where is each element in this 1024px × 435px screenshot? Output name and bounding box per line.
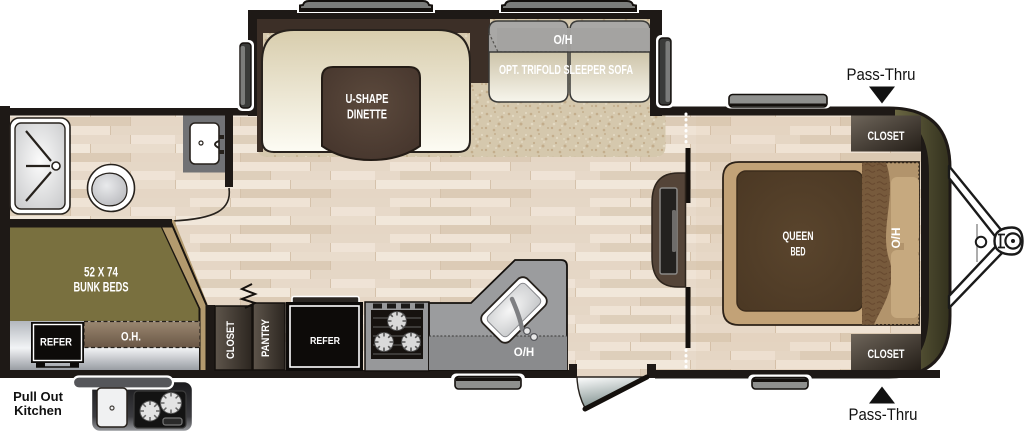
svg-text:REFER: REFER — [40, 337, 72, 349]
svg-text:BED: BED — [791, 245, 806, 259]
svg-text:CLOSET: CLOSET — [868, 131, 905, 143]
svg-text:U-SHAPE: U-SHAPE — [346, 92, 389, 106]
svg-text:DINETTE: DINETTE — [347, 108, 387, 122]
svg-text:QUEEN: QUEEN — [783, 229, 814, 243]
svg-text:CLOSET: CLOSET — [868, 349, 905, 361]
svg-text:Kitchen: Kitchen — [14, 403, 62, 418]
svg-text:Pass-Thru: Pass-Thru — [847, 66, 916, 84]
svg-text:CLOSET: CLOSET — [225, 321, 237, 359]
svg-text:O/H: O/H — [554, 32, 573, 47]
svg-text:OPT. TRIFOLD SLEEPER SOFA: OPT. TRIFOLD SLEEPER SOFA — [499, 63, 633, 77]
svg-text:PANTRY: PANTRY — [260, 318, 272, 357]
svg-text:O/H: O/H — [891, 228, 903, 249]
svg-text:Pull Out: Pull Out — [13, 389, 64, 404]
svg-text:O/H: O/H — [514, 347, 534, 359]
svg-text:BUNK BEDS: BUNK BEDS — [74, 279, 129, 295]
svg-text:REFER: REFER — [310, 335, 340, 347]
svg-text:O.H.: O.H. — [121, 330, 141, 344]
svg-text:52 X 74: 52 X 74 — [84, 264, 118, 280]
svg-text:Pass-Thru: Pass-Thru — [849, 406, 918, 424]
